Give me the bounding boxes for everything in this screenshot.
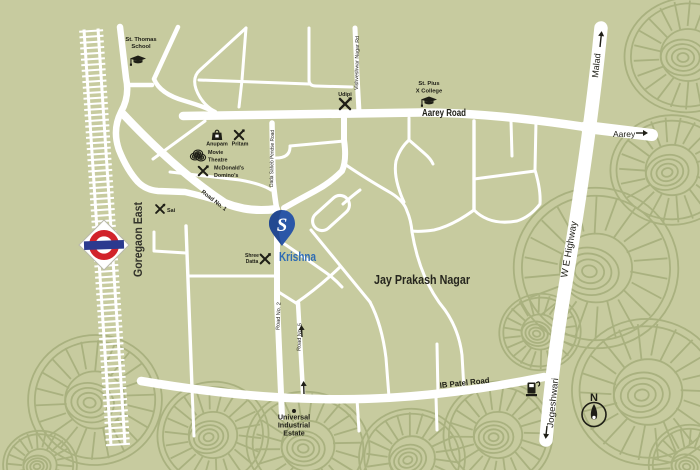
svg-text:X College: X College — [416, 89, 443, 95]
svg-text:Pritam: Pritam — [232, 142, 249, 148]
svg-text:School: School — [131, 44, 151, 50]
svg-text:Goregaon East: Goregaon East — [131, 202, 145, 277]
svg-text:Anupam: Anupam — [206, 142, 228, 148]
svg-text:Domino’s: Domino’s — [214, 173, 238, 179]
svg-text:Road No. 5: Road No. 5 — [297, 323, 304, 351]
svg-text:Jay Prakash Nagar: Jay Prakash Nagar — [374, 272, 470, 287]
svg-text:Sai: Sai — [167, 208, 176, 214]
svg-text:Udipi: Udipi — [338, 92, 352, 98]
svg-text:St. Thomas: St. Thomas — [125, 37, 156, 43]
svg-text:Road No. 2: Road No. 2 — [276, 302, 283, 330]
svg-text:Datta: Datta — [246, 259, 259, 265]
svg-text:Estate: Estate — [283, 429, 305, 438]
svg-text:Aarey: Aarey — [613, 129, 636, 139]
svg-text:St. Pius: St. Pius — [418, 81, 439, 87]
svg-text:Vishveshwar Nagar Rd: Vishveshwar Nagar Rd — [354, 36, 361, 90]
svg-text:Theatre: Theatre — [208, 158, 227, 164]
svg-text:Krishna: Krishna — [279, 249, 317, 264]
svg-text:Movie: Movie — [208, 150, 223, 156]
svg-text:McDonald’s: McDonald’s — [214, 166, 244, 172]
svg-text:Dada Saheb Pendse Road: Dada Saheb Pendse Road — [269, 130, 276, 187]
svg-text:Aarey Road: Aarey Road — [422, 107, 466, 119]
svg-text:S: S — [277, 215, 288, 236]
